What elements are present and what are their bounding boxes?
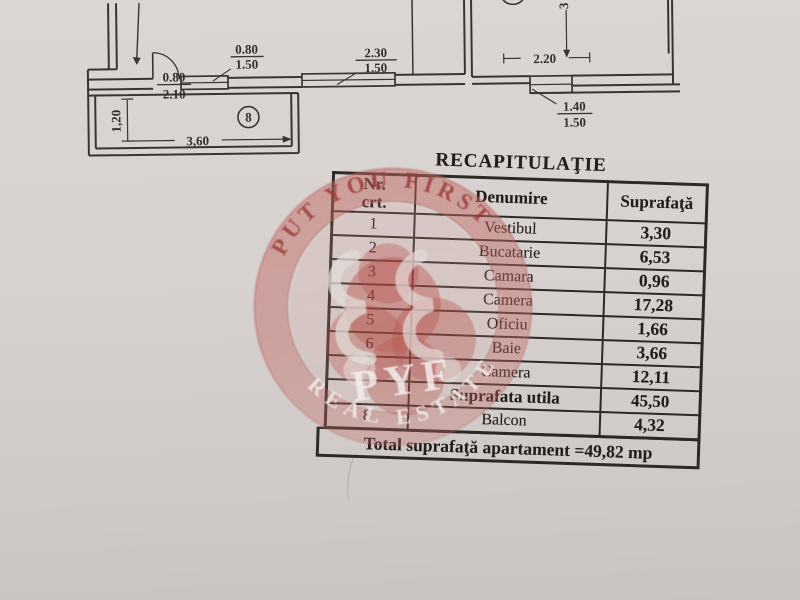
paper-scratch bbox=[344, 451, 366, 505]
cell-area: 3,30 bbox=[606, 220, 706, 247]
room-circle-top-partial bbox=[500, 0, 526, 5]
room-number: 8 bbox=[245, 110, 252, 125]
cell-area: 17,28 bbox=[604, 292, 704, 319]
dim-win2-width: 2.30 bbox=[364, 45, 387, 60]
dim-win3-width: 1.40 bbox=[563, 98, 586, 113]
col-nr-line1: Nr. bbox=[363, 174, 386, 194]
dim-220: 2.20 bbox=[533, 51, 556, 66]
recapitulation-block: RECAPITULAŢIE Nr. crt. Denumire Suprafaţ… bbox=[323, 146, 710, 469]
recap-table: Nr. crt. Denumire Suprafaţă 1 Vestibul 3… bbox=[324, 171, 709, 441]
cell-nr: 6 bbox=[328, 331, 411, 358]
dim-door-height: 2.10 bbox=[163, 86, 186, 101]
cell-area: 1,66 bbox=[603, 316, 703, 343]
cell-nr: 1 bbox=[332, 211, 415, 238]
dim-balcony-depth: 1,20 bbox=[108, 110, 123, 133]
col-suprafata: Suprafaţă bbox=[607, 182, 708, 223]
col-denumire: Denumire bbox=[415, 175, 608, 220]
cell-nr: 2 bbox=[331, 235, 414, 262]
cell-area: 3,66 bbox=[602, 340, 702, 367]
col-nr-line2: crt. bbox=[361, 192, 387, 212]
cell-nr: 3 bbox=[330, 259, 413, 286]
dim-balcony-width: 3,60 bbox=[186, 133, 209, 148]
cell-nr: 5 bbox=[328, 307, 411, 334]
cell-nr: 7 bbox=[327, 355, 410, 382]
plan-arrowheads bbox=[133, 50, 572, 145]
dim-door-width: 0.80 bbox=[162, 69, 185, 84]
cell-area: 0,96 bbox=[604, 268, 704, 295]
dim-3-vertical: 3 bbox=[556, 2, 571, 9]
cell-area: 45,50 bbox=[600, 388, 700, 415]
dim-win2-height: 1.50 bbox=[364, 60, 387, 75]
cell-area: 12,11 bbox=[601, 364, 701, 391]
cell-area: 6,53 bbox=[605, 244, 705, 271]
dim-win1-height: 1.50 bbox=[235, 56, 258, 71]
cell-nr: 8 bbox=[325, 403, 408, 430]
cell-nr: 4 bbox=[329, 283, 412, 310]
floor-plan: 0.80 2.10 0.80 1.50 2.30 1.50 2.20 3 1.4… bbox=[80, 0, 680, 165]
dim-win3-height: 1.50 bbox=[563, 114, 586, 129]
cell-nr bbox=[326, 379, 409, 406]
dim-win1-width: 0.80 bbox=[235, 41, 258, 56]
